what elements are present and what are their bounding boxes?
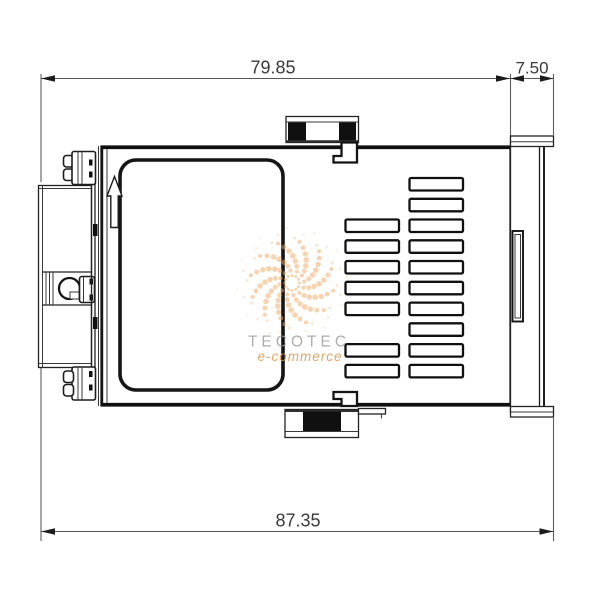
vent-slot <box>346 282 400 295</box>
vent-slot <box>410 282 464 295</box>
vent-slot <box>410 303 464 316</box>
vent-slot <box>410 323 464 336</box>
terminal-block <box>39 186 95 368</box>
front-bezel <box>511 136 554 417</box>
technical-drawing: 79.85 7.50 87.35 <box>0 0 600 600</box>
dimension-value: 79.85 <box>250 58 295 78</box>
vent-slot <box>346 240 400 253</box>
arrowhead-right <box>540 528 554 534</box>
rear-latch-bottom <box>64 367 96 400</box>
watermark-subtitle: e-commerce <box>257 349 342 364</box>
vent-slot <box>410 365 464 378</box>
vent-slot <box>410 220 464 233</box>
arrowhead-left <box>41 75 55 81</box>
bezel-top-lip <box>511 136 554 147</box>
arrowhead-right <box>496 75 510 81</box>
arrowhead-left <box>41 528 55 534</box>
vent-slot <box>410 344 464 357</box>
connector-pin <box>93 224 98 236</box>
vent-slot <box>410 178 464 191</box>
dimension-value: 7.50 <box>515 59 548 78</box>
side-slot <box>513 231 524 322</box>
vent-slot <box>346 261 400 274</box>
vent-slot <box>346 303 400 316</box>
rear-latch-top <box>64 152 96 185</box>
vent-slot <box>346 220 400 233</box>
clip-tab <box>359 409 386 415</box>
vent-slot <box>410 199 464 212</box>
dimension-bezel-depth: 7.50 <box>511 59 554 136</box>
vent-slot <box>410 240 464 253</box>
watermark-title: TECOTEC <box>248 334 350 351</box>
dimension-value: 87.35 <box>275 511 320 531</box>
vent-slot <box>346 344 400 357</box>
connector-pin <box>93 317 98 329</box>
vent-slot <box>410 261 464 274</box>
vent-slot <box>346 365 400 378</box>
